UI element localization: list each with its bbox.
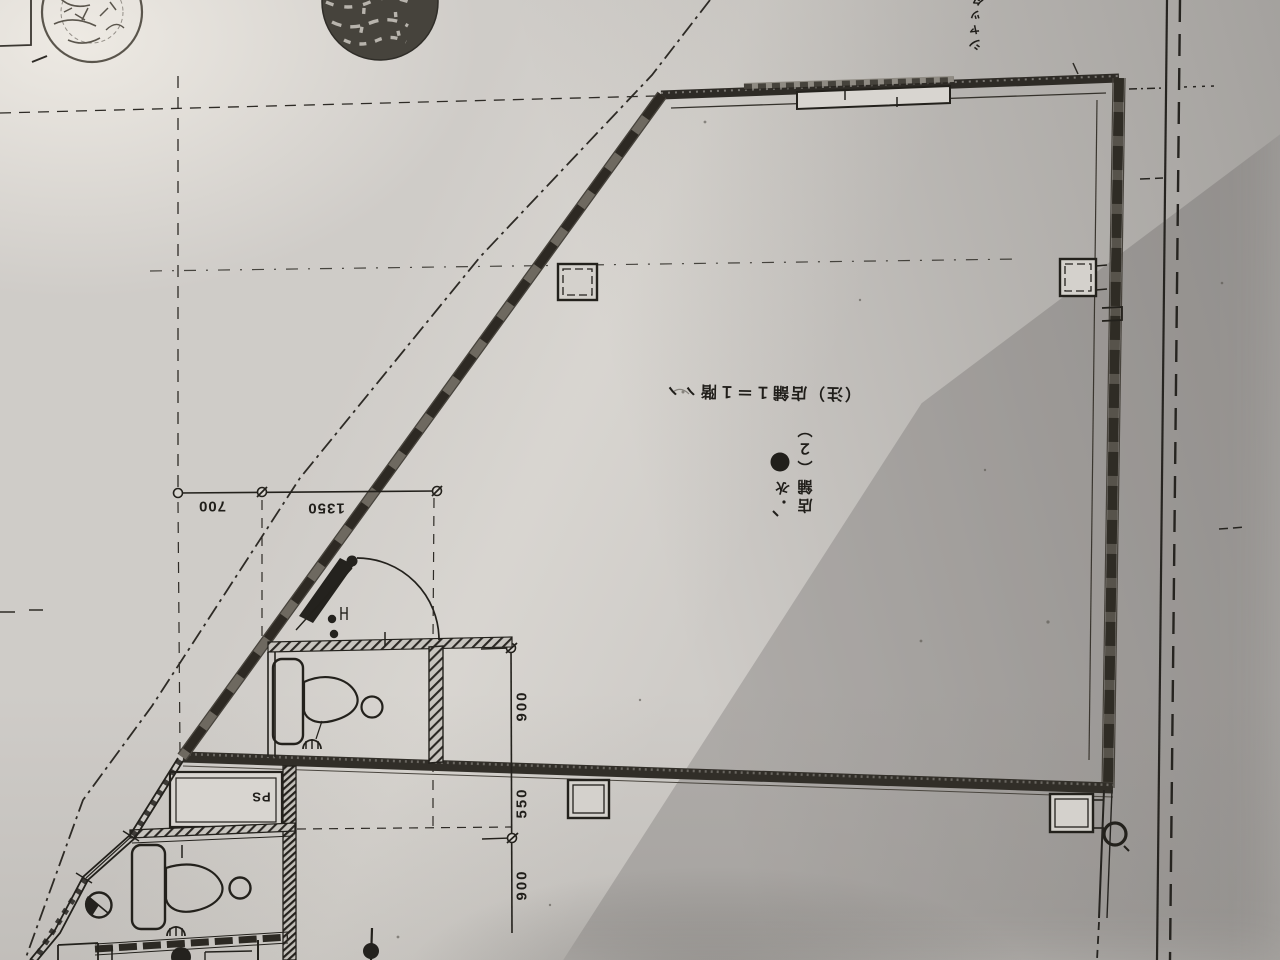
bottom-edge-structures (58, 928, 379, 960)
room-label: 店舗（２） (796, 419, 817, 514)
floor-plan-photo: （注）店舗１＝１階ヽヽ 店舗（２） 水 700 1350 900 550 900… (0, 0, 1280, 960)
dimension-line-vertical (481, 643, 518, 933)
right-wall-lower (1097, 790, 1112, 960)
stamp-dark (322, 0, 438, 60)
outer-walls (178, 76, 1125, 797)
toilet-tank-upper (273, 659, 303, 744)
dimension-line-horizontal (174, 486, 443, 498)
toilet-bowl-upper (304, 677, 358, 722)
ps-shaft (170, 766, 296, 960)
dimension-label-1350: 1350 (307, 500, 344, 517)
stamp-light (42, 0, 142, 62)
floor-drain-upper (362, 697, 383, 718)
title-block-corner (0, 0, 31, 46)
dimension-label-900-lower: 900 (514, 869, 531, 900)
dimension-label-700: 700 (198, 498, 226, 515)
column-left (558, 264, 597, 300)
toilet-tank-lower (132, 845, 165, 929)
grid-lines (0, 76, 1020, 831)
column-bottom-right (1050, 794, 1129, 851)
right-boundary-lines (1129, 0, 1246, 960)
plan-linework (0, 0, 1280, 960)
plan-note-text: （注）店舗１＝１階ヽヽ (663, 380, 861, 407)
floor-drain-lower (230, 878, 251, 899)
dimension-label-900-upper: 900 (514, 690, 531, 721)
pipe-shaft-label: PS (251, 790, 270, 805)
column-bottom-left (568, 780, 609, 818)
toilet-bowl-lower (166, 865, 222, 912)
dimension-label-550: 550 (514, 787, 531, 818)
